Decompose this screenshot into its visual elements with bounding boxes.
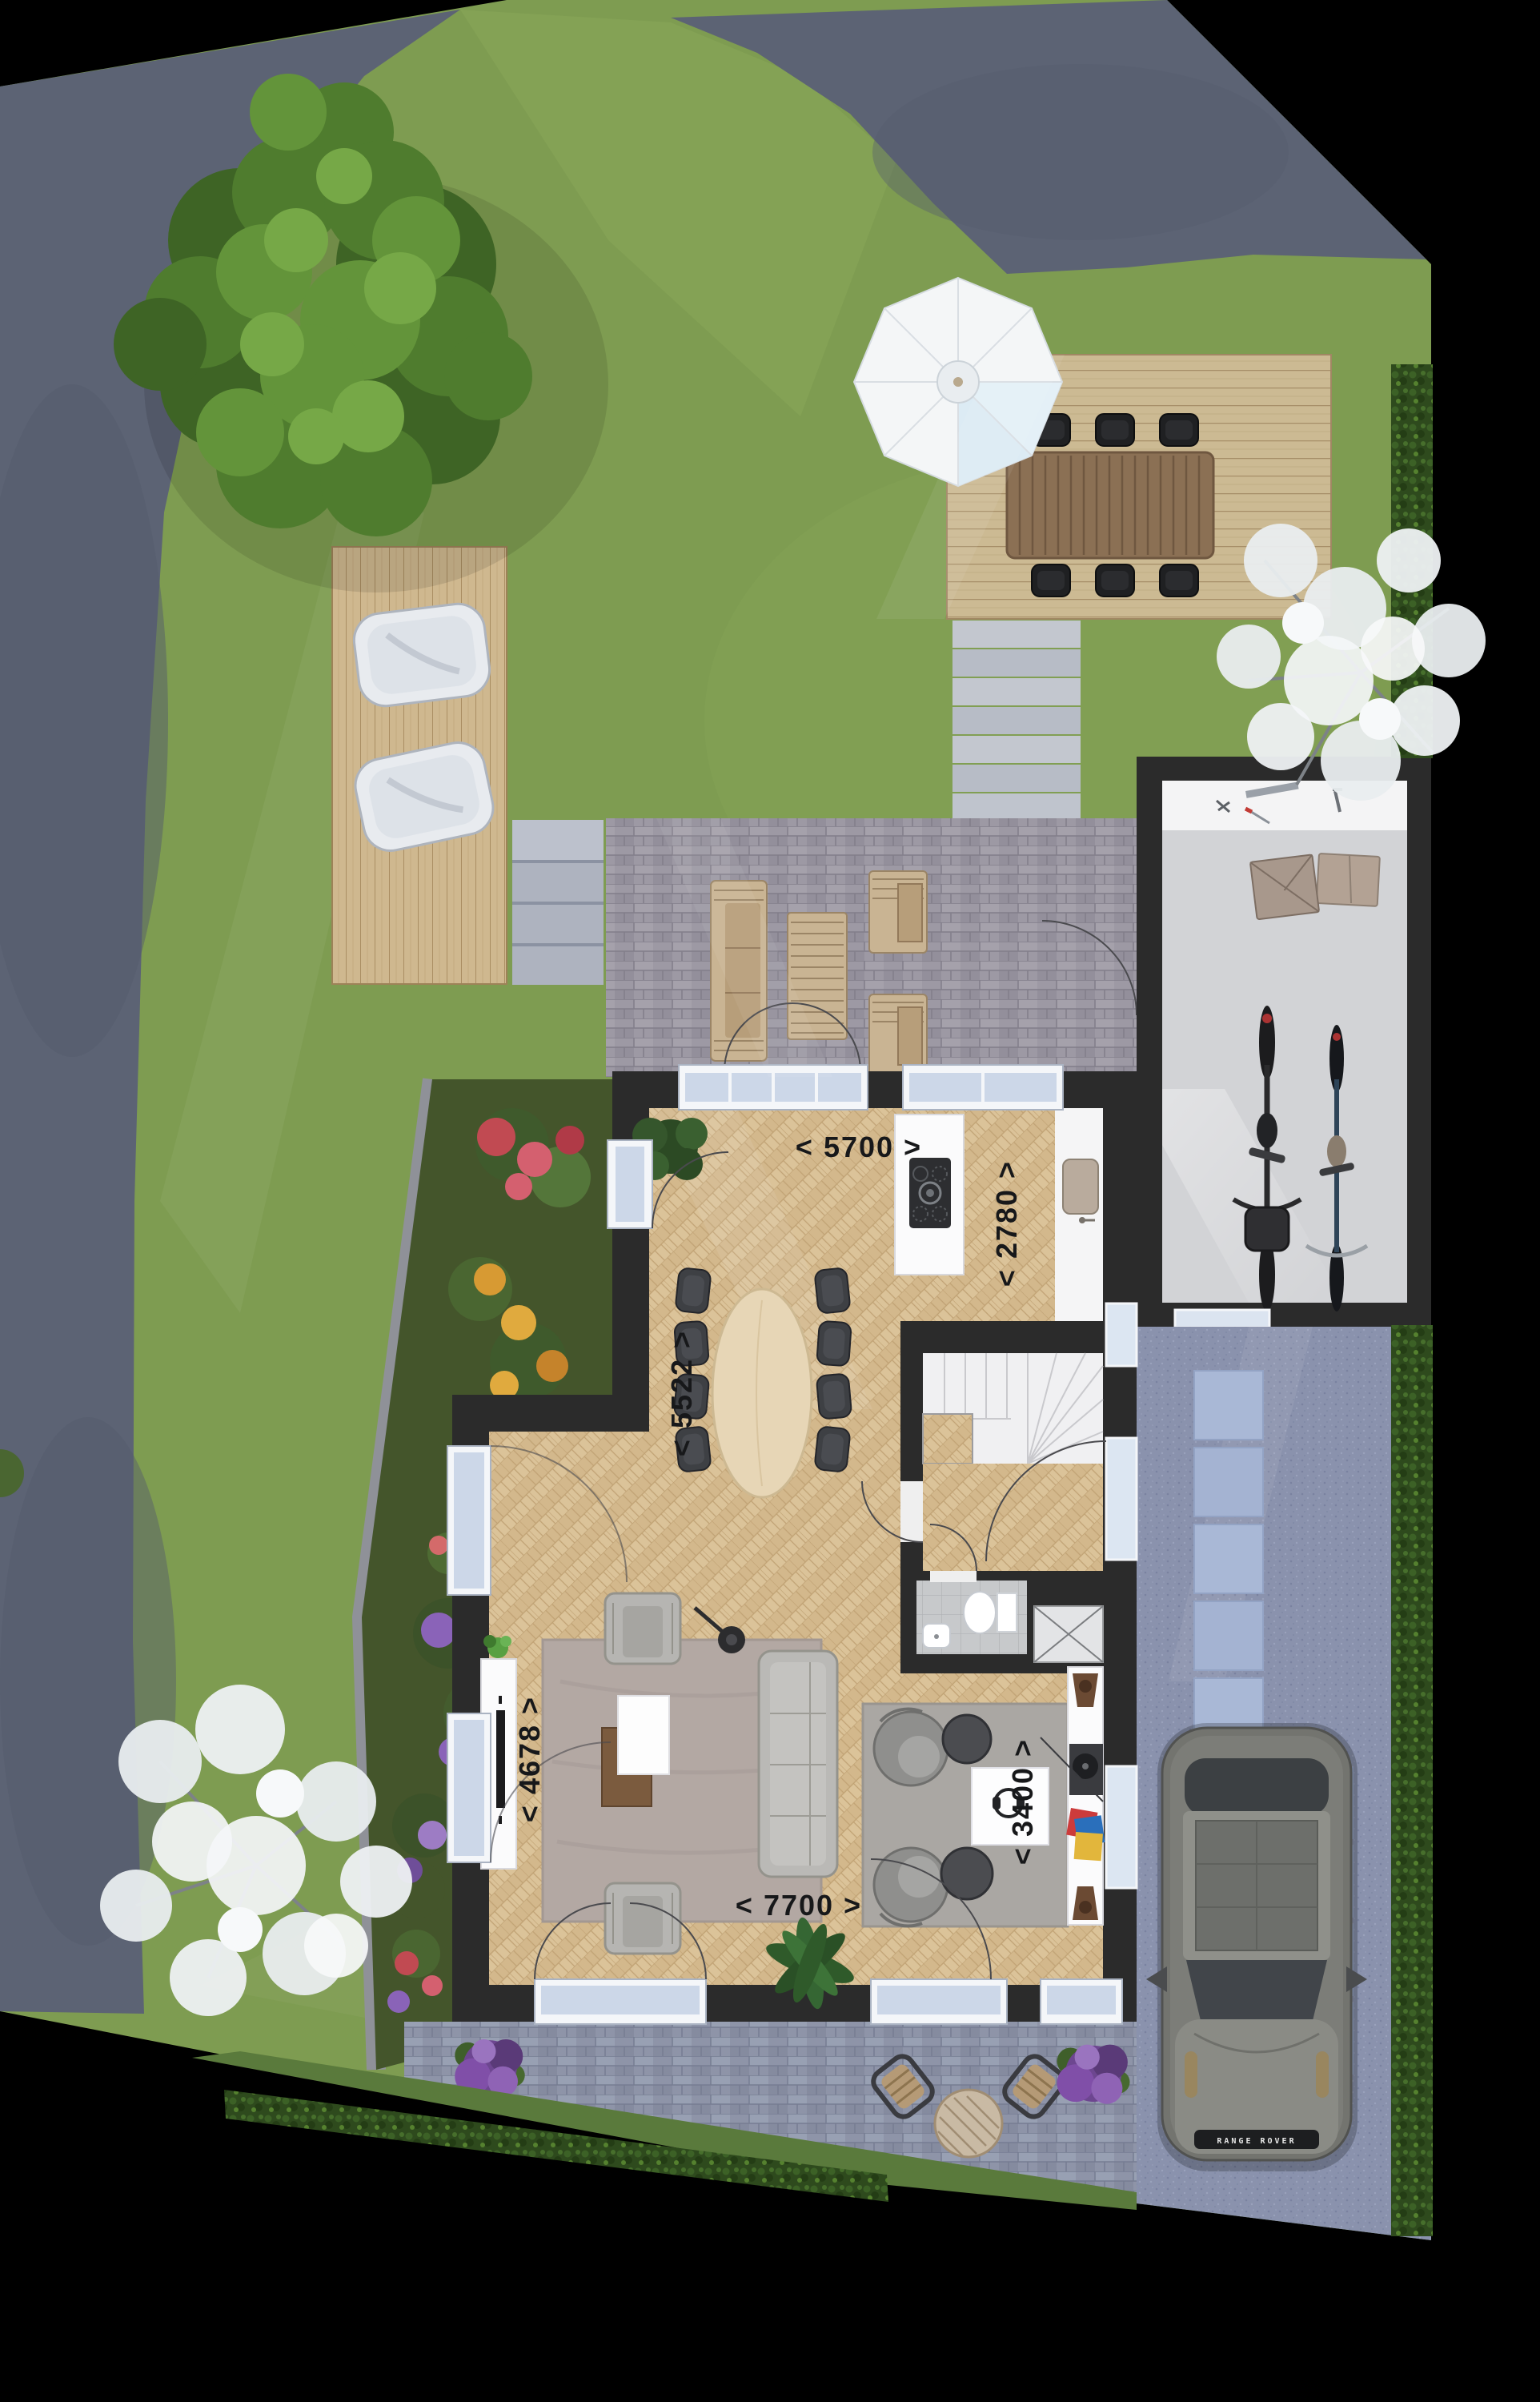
garage — [1137, 757, 1431, 1328]
window — [1106, 1303, 1137, 1366]
rear-window — [1185, 1758, 1329, 1816]
toilet — [964, 1592, 996, 1633]
purple-flower-bush — [1057, 2045, 1130, 2104]
sofa — [759, 1651, 837, 1877]
site-plan-canvas: < 5700 > < 2780 > < 5522 > < 4678 > < 34… — [0, 0, 1540, 2402]
dimension-living-length: < 7700 > — [736, 1889, 862, 1922]
headlight — [1185, 2051, 1197, 2098]
windshield — [1186, 1960, 1327, 2027]
staircase — [923, 1353, 1103, 1464]
side-table — [943, 1715, 991, 1763]
toilet-door-gap — [930, 1571, 977, 1582]
garden-steps — [512, 820, 604, 985]
site-plan-page: < 5700 > < 2780 > < 5522 > < 4678 > < 34… — [0, 0, 1540, 2402]
garage-window — [1175, 1310, 1269, 1328]
sitting-area — [863, 1667, 1105, 1926]
window — [1041, 1979, 1122, 2024]
concrete-slab-path — [952, 621, 1081, 821]
hallway-floor — [923, 1464, 1103, 1571]
tv — [496, 1710, 505, 1808]
dimension-sitting-width: < 3400 > — [1006, 1738, 1039, 1865]
technical-closet — [1034, 1606, 1103, 1662]
car-badge-text: RANGE ROVER — [1217, 2137, 1296, 2146]
dimension-kitchen-depth: < 2780 > — [990, 1160, 1023, 1287]
armchair — [605, 1883, 680, 1954]
side-table — [941, 1848, 993, 1899]
dimension-living-width: < 4678 > — [513, 1696, 546, 1822]
dining-table — [712, 1289, 812, 1497]
dimension-dining-depth: < 5522 > — [665, 1330, 698, 1456]
lounge-chair — [869, 994, 927, 1076]
window — [903, 1065, 1063, 1110]
dining-area — [674, 1267, 852, 1497]
lounge-chair — [869, 871, 927, 953]
car: RANGE ROVER — [1146, 1723, 1367, 2171]
stair-well — [923, 1414, 973, 1464]
kitchen-counter — [1055, 1108, 1103, 1324]
vinyl-record — [1074, 1832, 1103, 1861]
headlight — [1316, 2051, 1329, 2098]
dimension-kitchen-width: < 5700 > — [796, 1131, 922, 1163]
window — [1106, 1766, 1137, 1888]
interior-door-gap — [900, 1481, 923, 1542]
coffee-table-white — [618, 1696, 669, 1774]
armchair — [605, 1593, 680, 1664]
sun-lounger — [351, 600, 493, 709]
sink — [1063, 1159, 1098, 1214]
